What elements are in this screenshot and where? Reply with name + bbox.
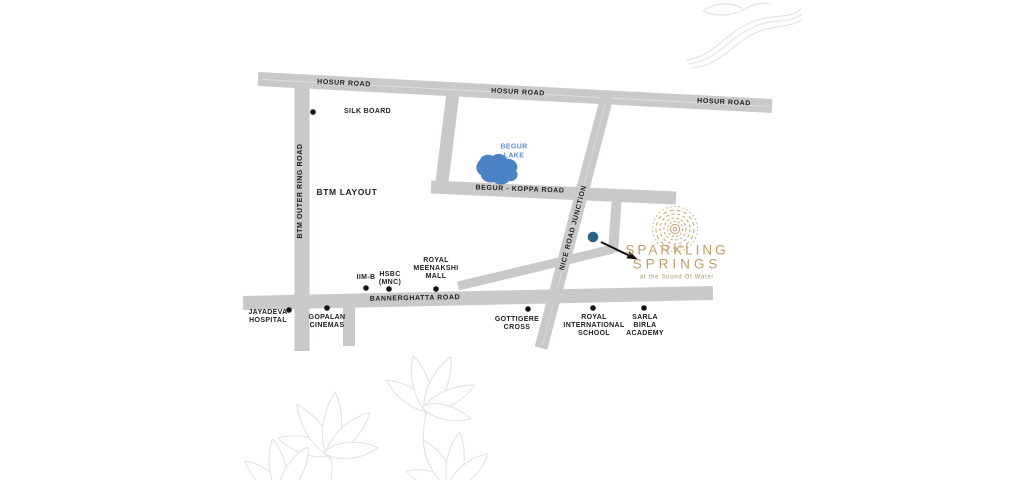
landmark-gopalan-cinemas: GOPALAN CINEMAS bbox=[309, 314, 346, 330]
landmark-hsbc-mnc: HSBC (MNC) bbox=[379, 271, 401, 287]
dot-silk-board bbox=[310, 109, 316, 115]
btm-outer-ring-road-label: BTM OUTER RING ROAD bbox=[297, 143, 305, 238]
dot-gottigere-cross bbox=[525, 306, 531, 312]
landmark-iim-b: IIM-B bbox=[357, 274, 376, 282]
dot-hsbc-mnc bbox=[386, 286, 392, 292]
landmark-gottigere-cross: GOTTIGERE CROSS bbox=[495, 316, 539, 332]
landmark-sarla-birla-academy: SARLA BIRLA ACADEMY bbox=[626, 314, 664, 338]
dot-sarla-birla-academy bbox=[641, 305, 647, 311]
landmark-jayadeva-hospital: JAYADEVA HOSPITAL bbox=[248, 309, 287, 325]
project-name-line1: SPARKLING bbox=[625, 244, 728, 258]
dot-royal-international-school bbox=[590, 305, 596, 311]
project-logo: SPARKLING SPRINGS at the Sound Of Water bbox=[625, 244, 728, 281]
road-connector bbox=[458, 249, 613, 286]
landmark-royal-international-school: ROYAL INTERNATIONAL SCHOOL bbox=[563, 314, 624, 338]
project-name-line2: SPRINGS bbox=[625, 258, 728, 272]
project-tagline: at the Sound Of Water bbox=[625, 275, 728, 281]
bannerghatta-road-label: BANNERGHATTA ROAD bbox=[370, 294, 461, 304]
road-bannerghatta bbox=[243, 293, 713, 303]
road-to-begur bbox=[441, 93, 453, 190]
landmark-silk-board: SILK BOARD bbox=[344, 108, 391, 116]
location-map: HOSUR ROAD HOSUR ROAD HOSUR ROAD BTM OUT… bbox=[0, 0, 1024, 480]
map-artwork bbox=[0, 0, 1024, 480]
swirl-decoration-icon bbox=[686, 3, 803, 68]
landmark-royal-meenakshi-mall: ROYAL MEENAKSHI MALL bbox=[413, 257, 458, 281]
dot-gopalan-cinemas bbox=[324, 305, 330, 311]
begur-lake-label: BEGUR LAKE bbox=[500, 144, 527, 161]
road-plot-stub bbox=[613, 196, 617, 252]
btm-layout-label: BTM LAYOUT bbox=[317, 188, 378, 196]
dot-royal-meenakshi-mall bbox=[433, 286, 439, 292]
dot-iim-b bbox=[363, 285, 369, 291]
project-location-marker bbox=[587, 231, 599, 243]
flower-decoration-icon bbox=[240, 337, 498, 480]
